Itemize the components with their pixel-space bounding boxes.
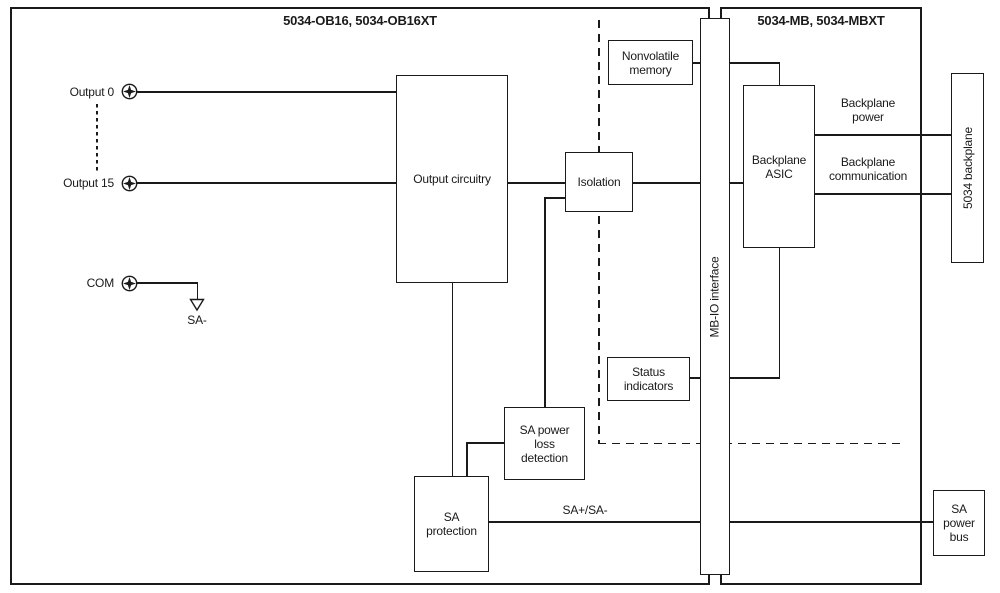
wire-backplane-power	[815, 134, 951, 136]
status-indicators-label: Status indicators	[618, 365, 679, 393]
terminal-label-com: COM	[24, 276, 114, 290]
output-circuitry-block: Output circuitry	[396, 75, 508, 283]
net-label-backplane-communication: Backplane communication	[807, 155, 929, 183]
mb-io-interface-label: MB-IO interface	[708, 256, 722, 337]
wire-isolation-to-sapowerloss	[544, 197, 546, 407]
5034-backplane-label: 5034 backplane	[961, 127, 975, 209]
wire-output0	[137, 91, 396, 93]
sa-power-loss-detection-label: SA power loss detection	[515, 423, 574, 465]
isolation-boundary-dashed-horizontal	[598, 443, 903, 445]
sa-power-bus-block: SA power bus	[933, 490, 985, 556]
isolation-boundary-dashed-vertical	[598, 20, 600, 444]
isolation-label: Isolation	[578, 175, 621, 189]
wire-isolation-stub	[544, 197, 565, 199]
backplane-asic-block: Backplane ASIC	[743, 85, 815, 248]
block-diagram: 5034-OB16, 5034-OB16XT 5034-MB, 5034-MBX…	[0, 0, 1000, 593]
backplane-asic-label: Backplane ASIC	[749, 153, 809, 181]
5034-backplane-block: 5034 backplane	[951, 73, 984, 263]
wire-sapowerloss-to-saprotection	[466, 442, 468, 477]
output-circuitry-label: Output circuitry	[413, 172, 491, 186]
isolation-block: Isolation	[565, 152, 633, 212]
net-label-backplane-power: Backplane power	[833, 96, 903, 124]
screw-terminal-icon-output-0	[121, 83, 138, 100]
mounting-base-section-title: 5034-MB, 5034-MBXT	[720, 13, 922, 28]
wire-backplane-communication	[815, 193, 951, 195]
terminal-label-output-15: Output 15	[24, 176, 114, 190]
nonvolatile-memory-block: Nonvolatile memory	[608, 40, 693, 85]
ground-arrow-icon	[189, 298, 205, 312]
net-label-sa-plus-sa-minus: SA+/SA-	[540, 503, 630, 517]
net-label-sa-minus: SA-	[172, 313, 222, 327]
sa-power-loss-detection-block: SA power loss detection	[504, 407, 585, 480]
status-indicators-block: Status indicators	[607, 357, 690, 401]
wire-output15	[137, 182, 396, 184]
mb-io-interface-block: MB-IO interface	[700, 18, 730, 575]
output-range-dashed-line	[96, 104, 98, 172]
sa-protection-label: SA protection	[421, 510, 482, 538]
nonvolatile-memory-label: Nonvolatile memory	[617, 49, 684, 77]
sa-protection-block: SA protection	[414, 476, 489, 572]
wire-outputcircuitry-to-saprotection	[452, 283, 454, 476]
wire-asic-bottom-drop	[779, 248, 781, 379]
terminal-label-output-0: Output 0	[24, 85, 114, 99]
wire-sapowerloss-stub	[466, 442, 504, 444]
wire-com	[137, 282, 198, 284]
sa-power-bus-label: SA power bus	[937, 502, 981, 544]
wire-asic-top-drop	[779, 62, 781, 86]
module-section-title: 5034-OB16, 5034-OB16XT	[10, 13, 710, 28]
screw-terminal-icon-com	[121, 275, 138, 292]
module-section-frame	[10, 7, 710, 585]
screw-terminal-icon-output-15	[121, 175, 138, 192]
